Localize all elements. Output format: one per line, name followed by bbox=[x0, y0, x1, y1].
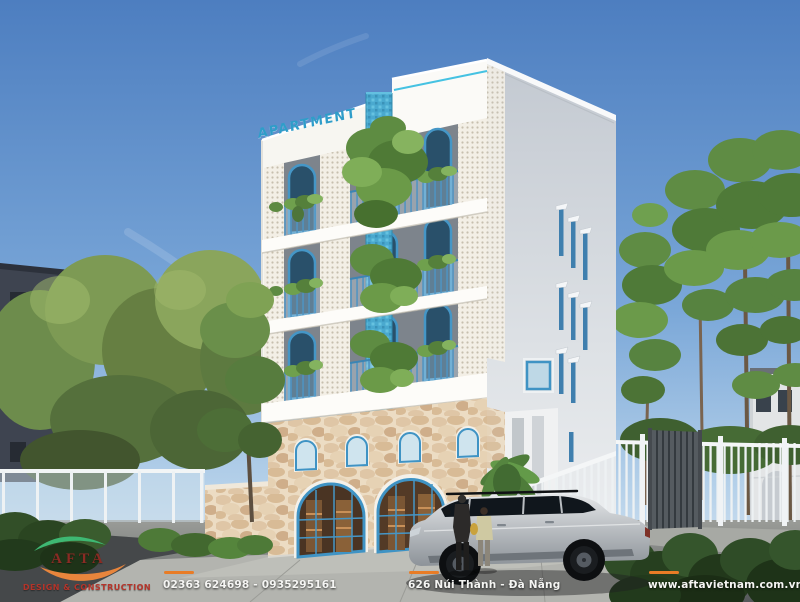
side-mirror bbox=[443, 509, 451, 515]
logo-tagline: DESIGN & CONSTRUCTION bbox=[14, 583, 160, 592]
footer-website: www.aftavietnam.com.vn bbox=[648, 579, 800, 591]
afta-logo: AFTA DESIGN & CONSTRUCTION bbox=[14, 531, 160, 601]
architectural-rendering: APARTMENT AFTA DESIGN & CONSTRUCTION 023… bbox=[0, 0, 800, 602]
orange-dash bbox=[164, 571, 194, 574]
orange-dash bbox=[649, 571, 679, 574]
fence-left bbox=[0, 469, 205, 523]
fence-right bbox=[616, 428, 800, 530]
scene-illustration bbox=[0, 0, 800, 602]
footer-phone: 02363 624698 - 0935295161 bbox=[163, 579, 337, 591]
footer-address: 626 Núi Thành - Đà Nẵng bbox=[408, 579, 560, 591]
breeze-block-panel-side bbox=[487, 64, 505, 362]
gate bbox=[648, 428, 702, 530]
logo-arc-green bbox=[34, 537, 106, 551]
side-horizontal-window bbox=[524, 359, 553, 392]
address-text: 626 Núi Thành - Đà Nẵng bbox=[408, 579, 560, 591]
logo-name: AFTA bbox=[14, 551, 144, 568]
yellow-bag bbox=[470, 523, 478, 535]
orange-dash bbox=[409, 571, 439, 574]
website-text: www.aftavietnam.com.vn bbox=[648, 579, 800, 591]
phone-text: 02363 624698 - 0935295161 bbox=[163, 579, 337, 591]
